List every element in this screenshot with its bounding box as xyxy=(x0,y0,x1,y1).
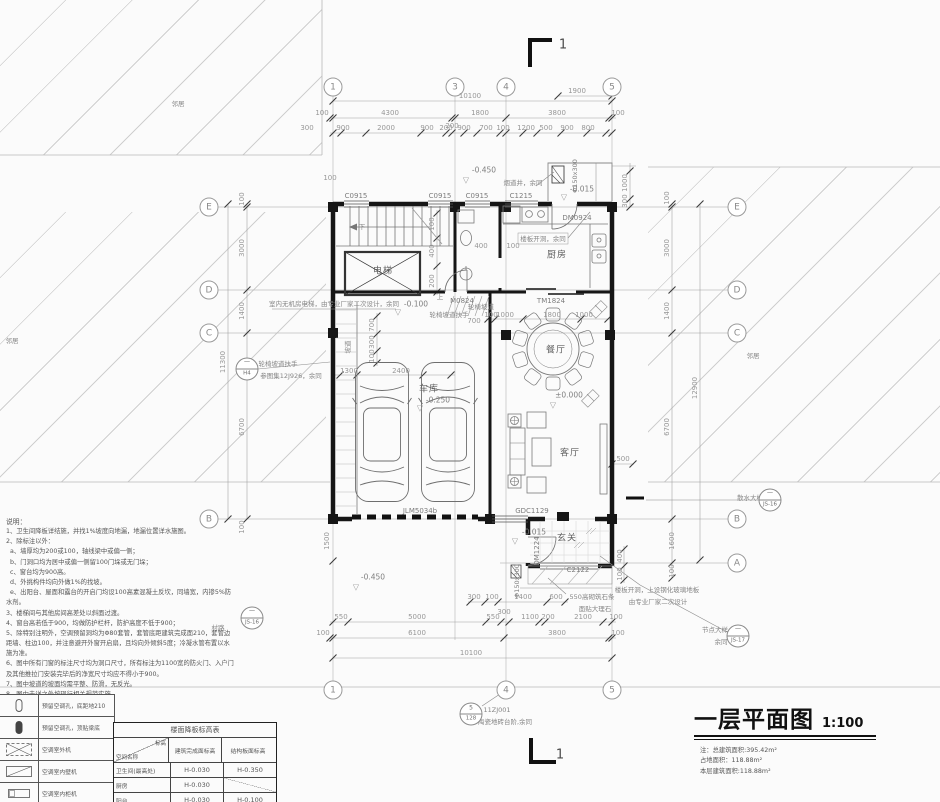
area-note-line: 占地面积：118.88m² xyxy=(700,756,884,766)
general-notes: 说明： 1、卫生间降板详结施，并找1%坡度向地漏，地漏位置详水施图。2、除标注以… xyxy=(6,516,236,700)
notes-list: 1、卫生间降板详结施，并找1%坡度向地漏，地漏位置详水施图。2、除标注以外： a… xyxy=(6,527,236,700)
dimension-ticks xyxy=(225,93,704,662)
note-line: 2、除标注以外： xyxy=(6,537,236,547)
car-2 xyxy=(419,363,478,502)
legend-row: 空调室内壁机 xyxy=(0,761,114,783)
row-value: H-0.030 xyxy=(171,763,224,777)
corner-bottom-label: 空间名称 xyxy=(116,753,138,761)
ac-legend-table: 预留空调孔，底距地210 预留空调孔，顶贴梁底 空调室外机 空调室内壁机 空调室… xyxy=(0,694,115,802)
grid-lines xyxy=(218,96,728,681)
row-value: H-0.030 xyxy=(171,778,224,792)
note-line: 1、卫生间降板详结施，并找1%坡度向地漏，地漏位置详水施图。 xyxy=(6,527,236,537)
legend-desc: 预留空调孔，顶贴梁底 xyxy=(39,717,114,738)
floor-plan-sheet: 1345145EDCBEDCBA111010019001004300180038… xyxy=(0,0,940,802)
bathroom-fixtures xyxy=(458,210,474,280)
row-value: H-0.030 xyxy=(171,793,224,802)
area-note-line: 本层建筑面积:118.88m² xyxy=(700,767,884,777)
wheelchair-ramp xyxy=(447,296,489,316)
row-value-empty xyxy=(224,778,276,792)
note-line: e、出阳台、屋面和露台的开启门均设100高素混凝土反坎，同墙宽，内掺5%防水剂。 xyxy=(6,588,236,608)
legend-row: 预留空调孔，底距地210 xyxy=(0,695,114,717)
structural-columns xyxy=(328,202,617,524)
elevation-table-row: 卫生间(最高处) H-0.030 H-0.350 xyxy=(114,763,276,778)
note-line: c、窗台均为900高。 xyxy=(6,568,236,578)
legend-desc: 空调室外机 xyxy=(39,739,114,760)
area-note-line: 注：总建筑面积:395.42m² xyxy=(700,746,884,756)
entrance-duct xyxy=(511,565,521,578)
notes-heading: 说明： xyxy=(6,516,236,526)
note-line: 4、窗台高若低于900，均做防护栏杆，防护高度不低于900； xyxy=(6,619,236,629)
section-cut-marks xyxy=(528,38,556,764)
legend-row: 预留空调孔，顶贴梁底 xyxy=(0,717,114,739)
ac-indoor-wall-unit-icon xyxy=(0,761,39,782)
floor-elevation-table: 楼面降板标高表 标高 空间名称 建筑完成面标高 结构板面标高 卫生间(最高处) … xyxy=(113,722,277,802)
row-name: 卫生间(最高处) xyxy=(114,763,171,777)
drawing-title: 一层平面图 xyxy=(694,700,814,734)
note-line: b、门洞口均为居中或偏一侧留100门垛或无门垛； xyxy=(6,558,236,568)
row-name: 厨房 xyxy=(114,778,171,792)
note-line: 5、除特别注明外，空调预留洞均为Φ80套管，套管底距建筑完成面210，套管边距墙… xyxy=(6,629,236,660)
legend-row: 空调室内柜机 xyxy=(0,783,114,802)
elevation-table-header: 标高 空间名称 建筑完成面标高 结构板面标高 xyxy=(114,738,276,763)
row-name: 阳台 xyxy=(114,793,171,802)
door-swings xyxy=(445,204,577,565)
drawing-title-block: 一层平面图 1:100 注：总建筑面积:395.42m² 占地面积：118.88… xyxy=(694,700,884,777)
note-line: 7、图中坡道的坡面均需平整、防滑，无反光。 xyxy=(6,680,236,690)
row-value: H-0.350 xyxy=(224,763,276,777)
legend-row: 空调室外机 xyxy=(0,739,114,761)
header-cell: 建筑完成面标高 xyxy=(169,738,222,762)
note-line: 6、图中所有门窗的标注尺寸均为洞口尺寸，所有标注为1100宽的防火门、入户门及其… xyxy=(6,659,236,679)
kitchen-counters xyxy=(503,206,608,288)
drawing-scale: 1:100 xyxy=(822,716,863,731)
ac-hole-pill-outline-icon xyxy=(0,695,39,716)
header-cell: 结构板面标高 xyxy=(222,738,274,762)
title-underline xyxy=(694,735,876,740)
ac-indoor-cabinet-unit-icon xyxy=(0,783,39,802)
note-line: d、外挑构件均向外做1%的找坡。 xyxy=(6,578,236,588)
garage-ramp-strip xyxy=(336,302,357,514)
corner-marks xyxy=(582,301,608,408)
living-room-furniture xyxy=(508,412,607,494)
legend-desc: 空调室内壁机 xyxy=(39,761,114,782)
elevation-table-row: 厨房 H-0.030 xyxy=(114,778,276,793)
elevation-table-title: 楼面降板标高表 xyxy=(114,723,276,738)
elevator-shaft xyxy=(345,252,420,295)
corner-top-label: 标高 xyxy=(155,739,166,747)
legend-desc: 空调室内柜机 xyxy=(39,783,114,802)
foyer-tiles xyxy=(530,521,610,563)
note-line: a、墙厚均为200或100，轴线梁中或偏一侧； xyxy=(6,547,236,557)
ac-outdoor-unit-icon xyxy=(0,739,39,760)
ac-hole-pill-filled-icon xyxy=(0,717,39,738)
car-1 xyxy=(353,363,412,502)
dining-table xyxy=(512,308,594,390)
row-value: H-0.100 xyxy=(224,793,276,802)
elevation-table-corner: 标高 空间名称 xyxy=(114,738,169,762)
dimension-lines xyxy=(228,96,700,658)
flue-enclosure xyxy=(548,163,612,201)
legend-desc: 预留空调孔，底距地210 xyxy=(39,695,114,716)
note-line: 3、楼梯间与其他房间高差处以斜面过渡。 xyxy=(6,609,236,619)
elevation-table-row: 阳台 H-0.030 H-0.100 xyxy=(114,793,276,802)
area-notes: 注：总建筑面积:395.42m² 占地面积：118.88m² 本层建筑面积:11… xyxy=(694,746,884,777)
